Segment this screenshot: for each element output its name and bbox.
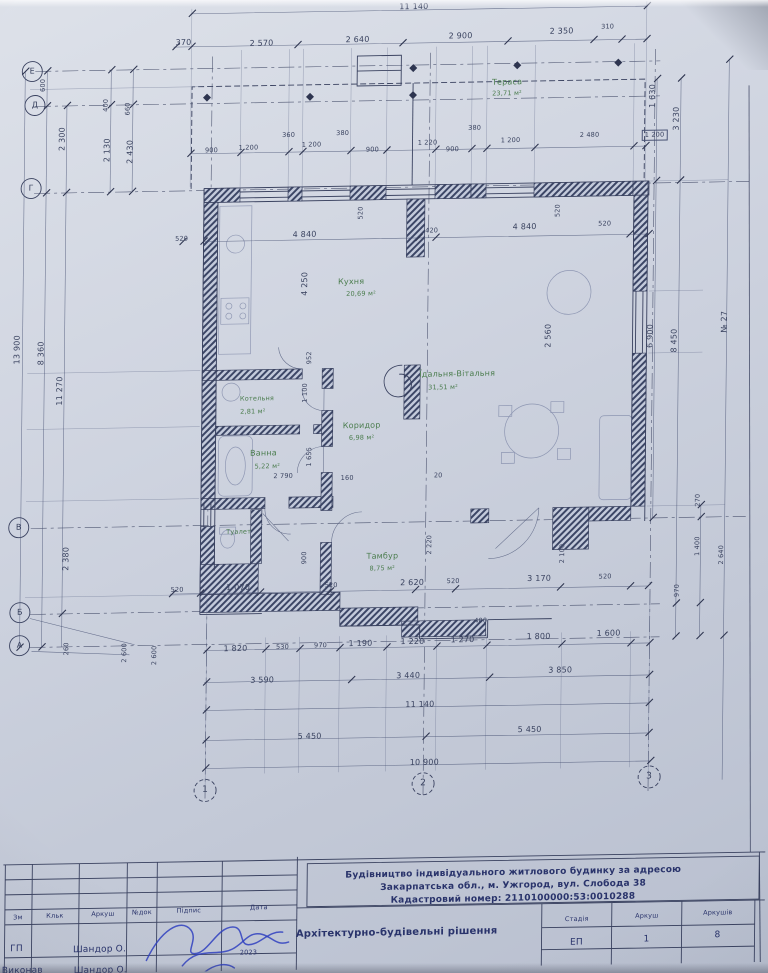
dim-label: 4 840 <box>513 223 537 231</box>
dim-label: 520 <box>555 204 562 217</box>
dim-label: 11 270 <box>56 376 64 405</box>
grid-row-label: Б <box>17 609 23 617</box>
dim-label: 400 <box>103 99 110 112</box>
sheets-header: Аркушів <box>703 909 732 916</box>
table-header: Зм <box>13 914 23 921</box>
dim-label: 660 <box>125 102 132 115</box>
dim-label: 1 200 <box>302 141 322 148</box>
grid-bubbles <box>6 51 667 805</box>
room-label-kitchen: Кухня <box>338 278 364 286</box>
stage-value: ЕП <box>570 939 583 948</box>
dim-label: 520 <box>358 206 365 219</box>
dim-label: 3 230 <box>673 107 681 131</box>
room-label-terrace: Тераса <box>492 78 522 87</box>
grid-row-label: Д <box>32 101 39 109</box>
dim-label: 2 600 <box>121 643 128 663</box>
dim-label: 5 450 <box>518 726 542 734</box>
dim-label: 1 400 <box>694 536 701 556</box>
room-area-bath: 5,22 м² <box>255 463 281 470</box>
dim-label: 5 450 <box>298 733 322 741</box>
dim-label: 520 <box>171 587 184 594</box>
dim-label: 2 380 <box>62 547 70 571</box>
room-area-terrace: 23,71 м² <box>492 90 522 97</box>
dim-label: 2 620 <box>400 579 424 587</box>
dim-label: 6 900 <box>646 324 654 348</box>
dim-label: 520 <box>447 578 460 585</box>
dim-label: 520 <box>175 236 188 243</box>
dim-label: 520 <box>599 573 612 580</box>
dim-label: 600 <box>40 79 47 92</box>
dim-label: 2 220 <box>426 535 433 555</box>
grid-col-label: 3 <box>646 772 652 781</box>
dim-label: 420 <box>425 227 438 234</box>
dimension-lines-layer <box>18 5 730 792</box>
signature-scribble <box>204 964 234 972</box>
dim-label: 1 200 <box>239 144 259 151</box>
room-label-wc: Туалет <box>226 528 251 535</box>
grid-row-label: Г <box>29 184 34 192</box>
sheet-value: 1 <box>643 935 649 944</box>
dim-label: 8 450 <box>670 329 678 353</box>
dim-label: 2 130 <box>103 138 111 162</box>
dim-label: 970 <box>674 584 681 597</box>
dim-label: 370 <box>176 39 192 47</box>
room-label-bath: Ванна <box>250 449 277 457</box>
dim-label: 310 <box>601 23 614 30</box>
dim-label: 1 220 <box>418 139 438 146</box>
room-area-kitchen: 20,69 м² <box>346 290 376 297</box>
table-header: Підпис <box>177 907 202 914</box>
table-header: №док <box>132 909 152 916</box>
dim-label: 530 <box>276 644 289 651</box>
dim-label: 1 190 <box>349 640 373 648</box>
blueprint-photo: 11 140 370 2 570 2 640 2 900 2 350 310 Т… <box>0 0 768 973</box>
room-label-boiler: Котельня <box>240 395 274 402</box>
grid-col-label: 1 <box>202 786 208 795</box>
dim-label: 270 <box>695 494 702 507</box>
dim-label: 520 <box>598 220 611 227</box>
dim-label: 2 560 <box>544 324 552 348</box>
dim-label: 260 <box>63 642 70 655</box>
dim-label: 2 100 <box>559 544 566 564</box>
dim-label: 400 <box>474 617 487 624</box>
extension-lines-layer <box>23 0 730 792</box>
dim-label: 360 <box>282 132 295 139</box>
dim-label: 10 900 <box>410 759 439 767</box>
room-area-corridor: 6,98 м² <box>349 434 375 441</box>
dim-label: 3 590 <box>250 676 274 684</box>
terrace-outline <box>191 51 645 189</box>
floor-plan-drawing <box>0 0 768 973</box>
dim-label: 13 900 <box>13 335 21 364</box>
dim-label: 1 600 <box>597 629 621 637</box>
table-header: Аркуш <box>91 911 114 918</box>
dim-label: 20 <box>434 472 443 479</box>
dim-label: 3 850 <box>548 666 572 674</box>
grid-col-label: 2 <box>420 779 426 788</box>
dim-label: 1 070 <box>226 584 250 592</box>
dim-label: 2 300 <box>59 127 67 151</box>
dim-label: 2 640 <box>718 545 725 565</box>
signature-scribble <box>182 933 288 966</box>
room-area-dining-living: 31,51 м² <box>428 384 458 391</box>
grid-row-label: В <box>16 524 22 532</box>
dim-label: 3 170 <box>527 575 551 583</box>
dim-label: 2 480 <box>580 132 600 139</box>
dim-label: 520 <box>325 582 338 589</box>
title-block-lines <box>2 85 768 973</box>
dim-label: 1 820 <box>223 645 247 653</box>
dim-label: 1 800 <box>527 633 551 641</box>
room-area-vestibule: 8,75 м² <box>370 565 396 572</box>
dim-label: 2 640 <box>346 36 370 44</box>
dim-label: 1 100 <box>302 383 309 403</box>
dim-label: 2 900 <box>449 32 473 40</box>
dim-label: 4 840 <box>293 231 317 239</box>
room-area-boiler: 2,81 м² <box>240 408 266 415</box>
dim-label: 1 200 <box>501 137 521 144</box>
signature-row-date: 2023 <box>240 949 257 956</box>
grid-row-label: А <box>17 642 23 650</box>
dim-label: 900 <box>205 147 218 154</box>
walls-layer <box>200 181 650 643</box>
dim-label: 8 360 <box>37 341 45 365</box>
signature-row-role: ГП <box>10 945 23 954</box>
stage-header: Стадія <box>565 916 589 923</box>
dim-label: 160 <box>341 475 354 482</box>
dim-label: 11 140 <box>399 3 428 11</box>
signature-row-name: Шандор О. <box>73 945 126 955</box>
grid-row-label: Е <box>30 67 35 75</box>
dim-label: 11 140 <box>405 701 434 709</box>
dim-label: 900 <box>446 146 459 153</box>
sheet-content: 11 140 370 2 570 2 640 2 900 2 350 310 Т… <box>0 0 768 973</box>
dim-label: 2 430 <box>126 140 134 164</box>
dim-label: № 27 <box>721 311 729 333</box>
table-header: Дата <box>250 904 268 911</box>
dim-label: 952 <box>306 351 313 364</box>
sheet-header: Аркуш <box>635 913 658 920</box>
dim-label: 900 <box>366 146 379 153</box>
dim-label: 1 200 <box>642 129 668 140</box>
dim-label: 380 <box>336 130 349 137</box>
dim-label: 1 630 <box>649 84 657 108</box>
room-label-dining-living: Їдальня-Вітальня <box>419 370 495 379</box>
room-label-vestibule: Тамбур <box>366 552 398 561</box>
signature-row-name: Шандор О. <box>74 966 127 973</box>
room-label-corridor: Коридор <box>343 422 381 431</box>
dim-label: 2 350 <box>550 27 574 35</box>
dim-label: 2 790 <box>273 473 293 480</box>
sheets-value: 8 <box>715 931 721 940</box>
dim-label: 1 270 <box>451 636 475 644</box>
dim-label: 4 250 <box>301 272 309 296</box>
signature-row-role: Виконав <box>2 967 43 973</box>
dim-label: 2 570 <box>250 39 274 47</box>
dim-label: 2 600 <box>151 646 158 666</box>
table-header: Кльк <box>46 913 63 920</box>
dim-label: 3 440 <box>396 672 420 680</box>
dim-label: 970 <box>314 642 327 649</box>
dim-label: 1 655 <box>306 447 313 467</box>
doors-layer <box>262 343 540 563</box>
dim-label: 1 220 <box>401 638 425 646</box>
dim-label: 900 <box>301 551 308 564</box>
dim-label: 380 <box>468 125 481 132</box>
